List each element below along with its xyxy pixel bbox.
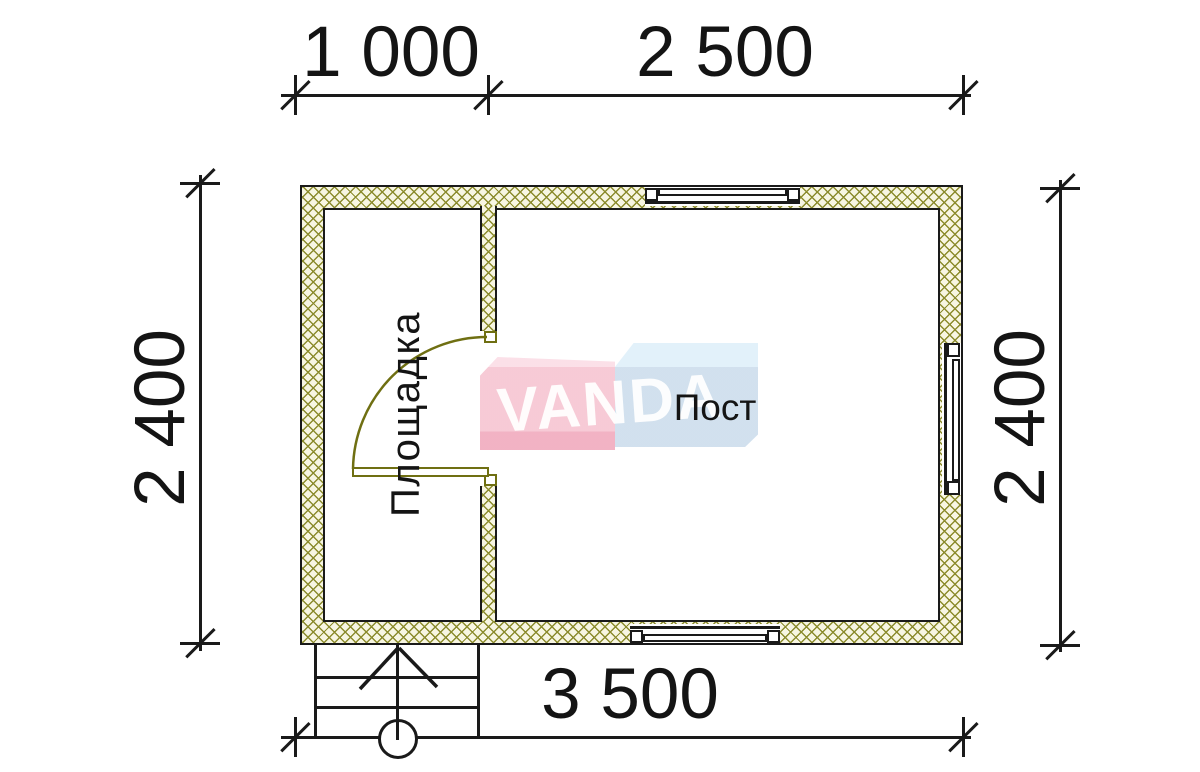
partition-wall-upper <box>480 206 497 331</box>
window-right-glass <box>952 359 960 481</box>
dim-label-2500: 2 500 <box>625 20 825 86</box>
dim-line-top <box>281 94 971 97</box>
window-top-jamb-right <box>787 188 800 201</box>
door-jamb-upper <box>484 331 497 343</box>
floor-plan-canvas: { "title": "bathhouse-floor-plan", "dime… <box>0 0 1200 772</box>
stairs-center-line <box>396 645 399 740</box>
room-label-post: Пост <box>640 386 790 430</box>
window-top-jamb-left <box>645 188 658 201</box>
window-bottom-glass <box>643 634 767 642</box>
dim-label-2400-left: 2 400 <box>128 288 194 548</box>
window-right-jamb-top <box>947 343 960 357</box>
window-right-inner-line <box>944 343 947 495</box>
stairs-left-edge <box>314 645 317 738</box>
window-right-jamb-bottom <box>947 481 960 495</box>
window-bottom-jamb-left <box>630 630 643 643</box>
dim-label-3500: 3 500 <box>528 662 732 728</box>
dim-label-2400-right: 2 400 <box>988 288 1054 548</box>
partition-wall-lower <box>480 486 497 622</box>
window-bottom-inner-line <box>630 626 780 629</box>
room-label-ploshchadka: Площадка <box>380 284 432 544</box>
dim-label-1000: 1 000 <box>291 20 491 86</box>
window-top-glass <box>658 188 787 196</box>
window-bottom-jamb-right <box>767 630 780 643</box>
stairs-right-edge <box>477 645 480 738</box>
window-top-inner-line <box>645 201 800 204</box>
